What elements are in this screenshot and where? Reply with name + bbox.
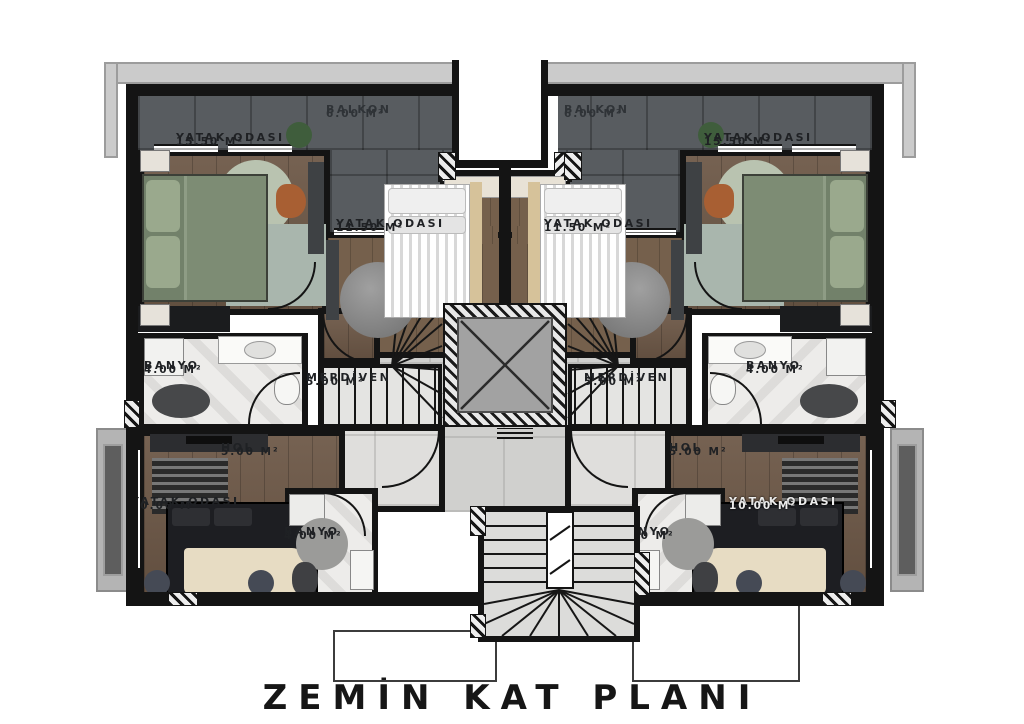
pillow — [830, 236, 864, 288]
wall — [872, 84, 884, 606]
bath-rug — [152, 384, 210, 418]
armchair — [704, 184, 734, 218]
roof-eave — [104, 62, 118, 158]
bath-rug — [800, 384, 858, 418]
floor-plan: BALKON6.00 M² YATAK ODASI15.50 M² YATAK … — [0, 0, 1024, 724]
column — [880, 400, 896, 428]
headboard — [470, 182, 482, 320]
porch-outline-right — [632, 604, 800, 682]
wall — [548, 84, 884, 96]
tv — [778, 436, 824, 444]
column — [168, 592, 198, 606]
column — [564, 152, 582, 180]
nightstand — [840, 150, 870, 172]
pillow — [830, 180, 864, 232]
elevator-x-icon — [457, 317, 553, 413]
plant — [286, 122, 312, 148]
armchair — [276, 184, 306, 218]
toilet — [292, 562, 318, 596]
column — [470, 614, 486, 638]
headboard — [528, 182, 540, 320]
column — [124, 400, 140, 428]
roof-eave — [902, 62, 916, 158]
column — [634, 552, 650, 596]
wall — [126, 84, 138, 606]
nightstand — [840, 304, 870, 326]
tv-unit — [308, 162, 324, 254]
shower — [826, 338, 866, 376]
duvet — [184, 176, 266, 300]
pillow — [146, 180, 180, 232]
desk — [671, 240, 684, 320]
plan-title: ZEMİN KAT PLANI — [0, 678, 1024, 718]
column — [470, 506, 486, 536]
duvet — [744, 176, 826, 300]
column — [822, 592, 852, 606]
wall — [126, 84, 452, 96]
elevator-steps — [497, 428, 533, 439]
column — [438, 152, 456, 180]
desk — [326, 240, 339, 320]
sink — [244, 341, 276, 359]
pillow — [146, 236, 180, 288]
pillow — [214, 508, 252, 526]
pillow — [388, 188, 466, 214]
tv-unit — [686, 162, 702, 254]
pillow — [800, 508, 838, 526]
side-platform — [103, 444, 123, 576]
main-staircase-treads — [484, 512, 634, 636]
blanket — [184, 548, 306, 594]
sink — [734, 341, 766, 359]
side-platform — [897, 444, 917, 576]
pillow — [544, 188, 622, 214]
void — [452, 60, 548, 168]
sink — [350, 550, 374, 590]
nightstand — [140, 304, 170, 326]
nightstand — [140, 150, 170, 172]
blanket — [704, 548, 826, 594]
toilet — [692, 562, 718, 596]
